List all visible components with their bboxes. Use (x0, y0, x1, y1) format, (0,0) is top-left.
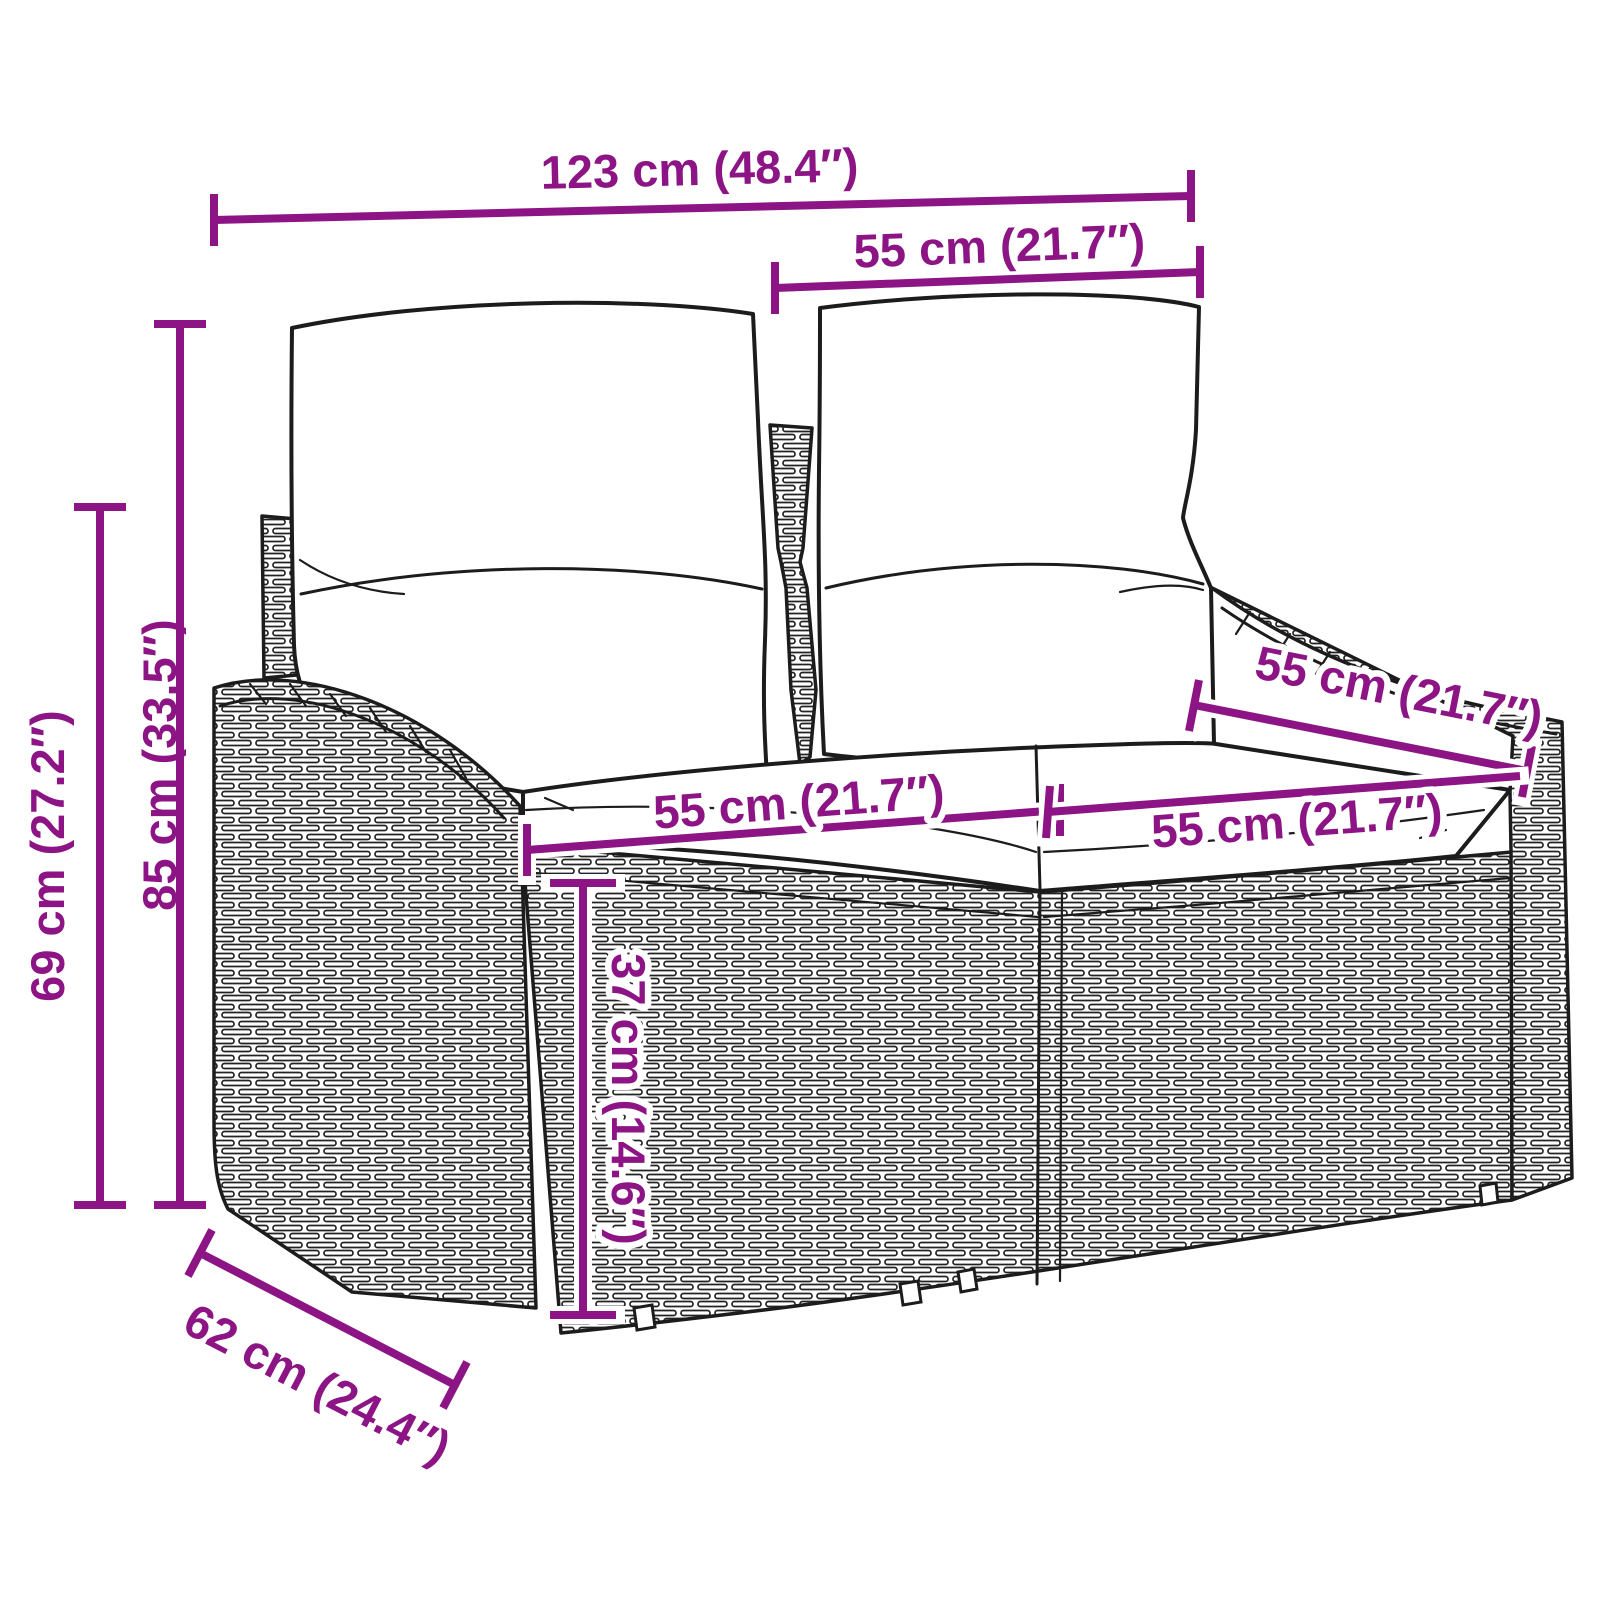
dim-backrest-width-label: 55 cm (21.7″) (853, 213, 1146, 277)
sofa-foot (634, 1305, 655, 1330)
dim-seat-width-right-tick-left (1046, 786, 1050, 838)
back-cushion-right (819, 294, 1214, 763)
base-front (522, 845, 1512, 1333)
dim-seat-depth-label: 62 cm (24.4″) (176, 1293, 459, 1474)
dim-backrest-width-line (775, 272, 1200, 288)
sofa-foot (900, 1281, 921, 1305)
base-front-face (522, 845, 1512, 1333)
sofa-foot (1480, 1183, 1498, 1205)
sofa-foot (958, 1269, 977, 1292)
sofa-dimension-diagram: 123 cm (48.4″) 55 cm (21.7″) 85 cm (33.5… (0, 0, 1600, 1600)
dim-frame-height: 69 cm (27.2″) (21, 507, 126, 1205)
back-cushion-right-body (819, 294, 1214, 763)
dim-total-height-label: 85 cm (33.5″) (133, 619, 186, 911)
left-armrest (214, 680, 536, 1308)
dim-frame-height-label: 69 cm (27.2″) (21, 710, 74, 1002)
left-armrest-body (214, 680, 536, 1308)
back-post-center (770, 425, 816, 764)
diagram-canvas: 123 cm (48.4″) 55 cm (21.7″) 85 cm (33.5… (0, 0, 1600, 1600)
dim-total-height: 85 cm (33.5″) (133, 324, 206, 1205)
dim-seat-height-label: 37 cm (14.6″) (602, 953, 655, 1245)
dim-overall-width-label: 123 cm (48.4″) (540, 138, 859, 199)
